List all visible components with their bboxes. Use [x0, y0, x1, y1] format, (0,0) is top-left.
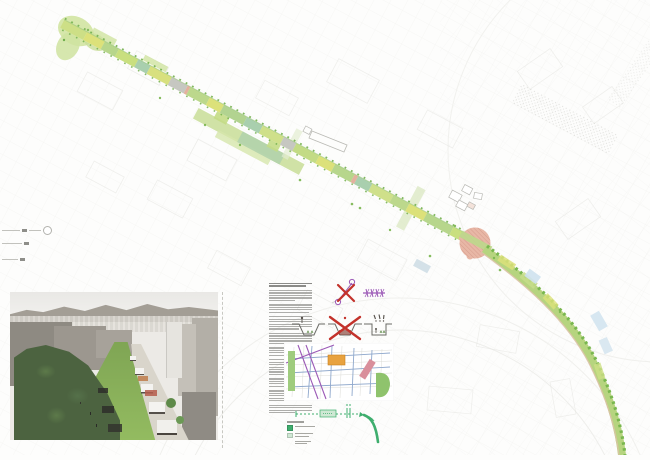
legend-row [287, 433, 333, 439]
photo-pavilion-roof [145, 390, 157, 396]
text-paragraph [269, 304, 312, 313]
photo-white-tower [166, 322, 182, 378]
mini-map-corridor-strip [288, 351, 295, 391]
road-section-diagrams [292, 314, 392, 342]
photo-pavilion [135, 368, 144, 374]
photo-person [96, 424, 97, 427]
text-paragraph [269, 290, 312, 301]
legend-swatch-green [287, 425, 293, 431]
photo-tree [166, 398, 176, 408]
legend-row [287, 425, 333, 431]
mini-map-legend [287, 421, 333, 448]
photo-sunken-patio [98, 388, 108, 393]
section-crossed [328, 317, 362, 339]
red-x-icon [338, 285, 354, 301]
photo-tree [176, 416, 184, 424]
photo-pavilion [149, 402, 165, 412]
photo-pavilion-roof [138, 376, 148, 381]
section-alert [364, 315, 392, 336]
section-trench [292, 317, 325, 335]
text-paragraph [269, 283, 312, 287]
legend-title [287, 421, 304, 423]
photo-pavilion [157, 420, 177, 433]
photo-sunken-patio [102, 406, 114, 413]
photo-right-foreground-building [182, 392, 216, 440]
callout-scale-2 [2, 258, 25, 261]
legend-swatch-light-green [287, 433, 293, 439]
map-callouts [2, 224, 62, 272]
callout-north [2, 226, 52, 235]
photo-pavilion [130, 356, 136, 360]
mini-map-orange-site [328, 355, 345, 365]
aerial-park-rendering-photo [10, 292, 218, 440]
photo-person [80, 402, 81, 404]
photo-person [90, 412, 91, 415]
photo-margin-dashed-line [222, 292, 223, 448]
metro-crossing-diagram [330, 277, 388, 307]
callout-scale-1 [2, 242, 29, 245]
legend-row [287, 440, 333, 446]
context-mini-map [284, 343, 394, 401]
masterplan-board: { "board": { "kind": "urban masterplan p… [0, 0, 650, 455]
north-arrow-icon [43, 226, 52, 235]
photo-sunken-patio [108, 424, 122, 432]
